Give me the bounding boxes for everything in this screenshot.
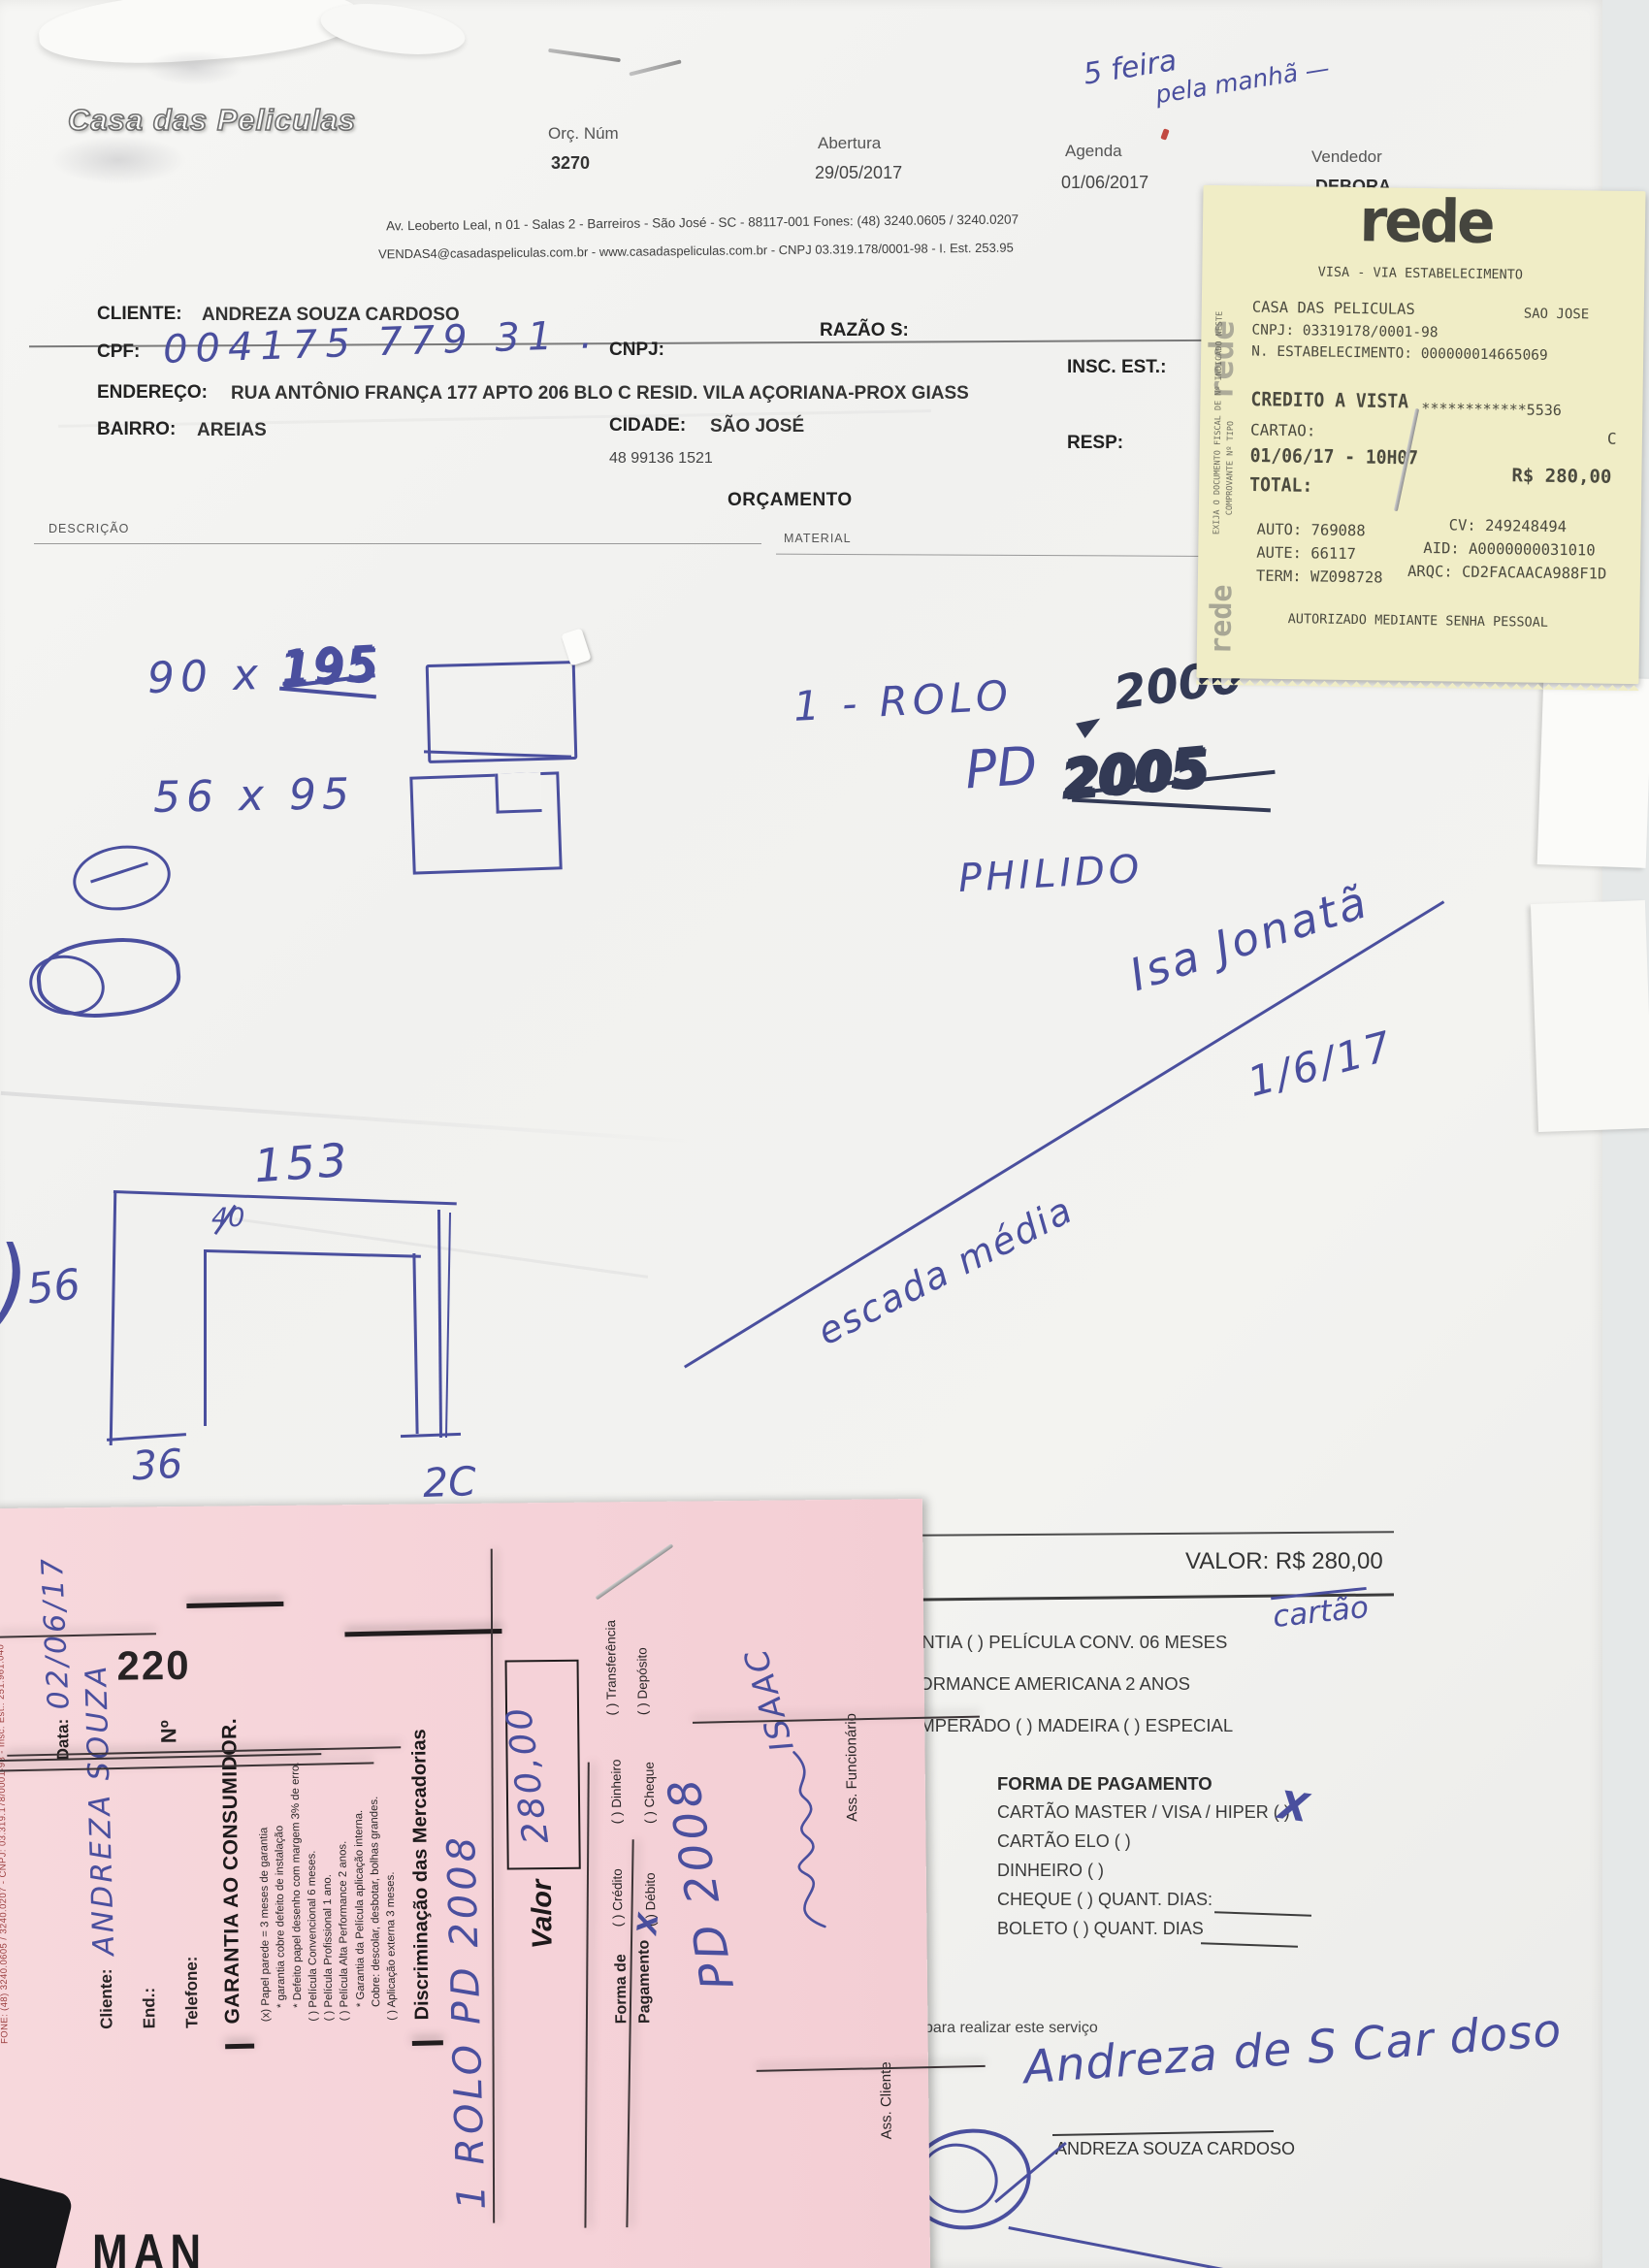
warranty-slip: FONE: (48) 3240.0605 / 3240.0207 - CNPJ:… bbox=[0, 1499, 930, 2268]
open-date-label: Abertura bbox=[818, 134, 881, 153]
slip-client-label: Cliente: bbox=[97, 1968, 117, 2029]
warranty-option-row-1: ANTIA ( ) PELÍCULA CONV. 06 MESES bbox=[910, 1632, 1227, 1653]
schedule-value: 01/06/2017 bbox=[1061, 173, 1148, 193]
receipt-footer: AUTORIZADO MEDIANTE SENHA PESSOAL bbox=[1250, 611, 1585, 632]
schedule-label: Agenda bbox=[1065, 142, 1122, 161]
city-label: CIDADE: bbox=[609, 415, 686, 437]
payment-option-cash: DINHEIRO ( ) bbox=[997, 1861, 1104, 1881]
receipt-edge-text-1: EXIJA O DOCUMENTO FISCAL DE Nº INDICADO … bbox=[1212, 311, 1225, 535]
sketch-top-width-label: 153 bbox=[252, 1134, 351, 1194]
receipt-edge-text-2: COMPROVANTE Nº TIPO bbox=[1225, 421, 1236, 515]
address-value: RUA ANTÔNIO FRANÇA 177 APTO 206 BLO C RE… bbox=[231, 383, 969, 405]
slip-checkbox-deposito: ( ) Depósito bbox=[634, 1647, 650, 1715]
handwritten-pd: PD bbox=[963, 734, 1039, 800]
warranty-option-row-2: FORMANCE AMERICANA 2 ANOS bbox=[908, 1673, 1190, 1695]
sketch-right-width-label: 2C bbox=[422, 1458, 476, 1507]
district-value: AREIAS bbox=[197, 420, 267, 441]
rede-logo: rede bbox=[1309, 185, 1543, 258]
rede-logo-vertical-bottom: rede bbox=[1204, 566, 1240, 672]
sketch-left-height-label: 56 bbox=[25, 1260, 83, 1313]
slip-number-value: 220 bbox=[116, 1642, 191, 1690]
handwritten-dimension-1: 90 x bbox=[146, 650, 265, 703]
slip-number-label: Nº bbox=[156, 1720, 181, 1743]
scanned-document: Casa das Peliculas Orç. Núm 3270 Abertur… bbox=[0, 0, 1649, 2268]
receipt-merchant: CASA DAS PELICULAS bbox=[1252, 299, 1415, 318]
cnpj-label: CNPJ: bbox=[609, 340, 664, 361]
warranty-option-row-3: EMPERADO ( ) MADEIRA ( ) ESPECIAL bbox=[908, 1715, 1233, 1736]
paper-smudge bbox=[145, 50, 242, 85]
employee-signature-name: ISAAC bbox=[736, 1644, 801, 1756]
slip-payment-label-2: Pagamento bbox=[636, 1940, 655, 2024]
slip-checkbox-credito: ( ) Crédito bbox=[610, 1868, 626, 1927]
receipt-arqc: ARQC: CD2FACAACA988F1D bbox=[1407, 563, 1607, 583]
customer-printed-name: ANDREZA SOUZA CARDOSO bbox=[1055, 2139, 1295, 2159]
slip-edge-fine-print: FONE: (48) 3240.0605 / 3240.0207 - CNPJ:… bbox=[0, 1644, 11, 2044]
slip-address-label: End.: bbox=[140, 1988, 159, 2029]
frame-inner-vertical bbox=[204, 1249, 207, 1426]
slip-checkbox-cheque: ( ) Cheque bbox=[642, 1762, 658, 1824]
company-logo: Casa das Peliculas bbox=[68, 103, 356, 138]
slip-title-bar-left bbox=[225, 2044, 254, 2050]
paper-smudge bbox=[50, 136, 186, 184]
slip-item-handwritten-2: PD 2008 bbox=[657, 1772, 744, 1994]
slip-value-label: Valor bbox=[527, 1879, 560, 1949]
receipt-aute: AUTE: 66117 bbox=[1256, 544, 1356, 563]
payment-option-elo: CARTÃO ELO ( ) bbox=[997, 1831, 1131, 1852]
material-column-label: MATERIAL bbox=[784, 532, 852, 545]
cpf-label: CPF: bbox=[97, 341, 140, 363]
total-value-line: VALOR: R$ 280,00 bbox=[1185, 1548, 1383, 1575]
order-number-value: 3270 bbox=[551, 153, 590, 174]
receipt-transaction-type: CREDITO A VISTA bbox=[1250, 388, 1408, 412]
slip-client-handwritten: ANDREZA SOUZA bbox=[80, 1663, 121, 1956]
slip-client-signature-label: Ass. Cliente bbox=[878, 2061, 895, 2139]
receipt-auto: AUTO: 769088 bbox=[1256, 521, 1365, 540]
receipt-card-label: CARTAO: bbox=[1250, 421, 1316, 440]
corner-partial-text: MAN bbox=[92, 2224, 207, 2268]
slip-checkbox-transferencia: ( ) Transferência bbox=[603, 1620, 619, 1715]
slip-ruled-line-2 bbox=[584, 1763, 589, 2228]
slip-checkbox-dinheiro: ( ) Dinheiro bbox=[609, 1759, 625, 1824]
slip-phone-label: Telefone: bbox=[182, 1956, 203, 2028]
slip-merchandise-title: Discriminação das Mercadorias bbox=[408, 1729, 434, 2020]
razao-social-label: RAZÃO S: bbox=[820, 320, 909, 341]
slip-title: GARANTIA AO CONSUMIDOR. bbox=[218, 1718, 244, 2025]
receipt-amount: R$ 280,00 bbox=[1511, 465, 1611, 487]
receipt-establishment: N. ESTABELECIMENTO: 000000014665069 bbox=[1251, 344, 1548, 364]
slip-item-handwritten: 1 ROLO PD 2008 bbox=[439, 1832, 495, 2210]
salesperson-label: Vendedor bbox=[1311, 147, 1382, 167]
city-value: SÃO JOSÉ bbox=[710, 416, 804, 437]
receipt-cnpj: CNPJ: 03319178/0001-98 bbox=[1251, 323, 1438, 341]
slip-date-handwritten: 02/06/17 bbox=[36, 1555, 77, 1710]
sketch-rectangle-1 bbox=[426, 661, 578, 763]
payment-method-title: FORMA DE PAGAMENTO bbox=[997, 1773, 1212, 1795]
payment-option-boleto: BOLETO ( ) QUANT. DIAS bbox=[997, 1919, 1204, 1939]
client-phone: 48 99136 1521 bbox=[609, 450, 713, 468]
receipt-total-label: TOTAL: bbox=[1249, 474, 1312, 498]
receipt-via-line: VISA - VIA ESTABELECIMENTO bbox=[1260, 264, 1580, 284]
receipt-term: TERM: WZ098728 bbox=[1256, 567, 1383, 587]
district-label: BAIRRO: bbox=[97, 419, 176, 440]
receipt-datetime: 01/06/17 - 10H07 bbox=[1250, 445, 1419, 470]
responsible-label: RESP: bbox=[1067, 433, 1123, 454]
insc-est-label: INSC. EST.: bbox=[1067, 357, 1166, 378]
service-note-text: para realizar este serviço bbox=[917, 2020, 1098, 2037]
receipt-city: SAO JOSE bbox=[1524, 306, 1590, 322]
slip-merc-bar-left bbox=[412, 2041, 443, 2046]
sketch-rectangle-2 bbox=[409, 771, 562, 874]
slip-date-underline bbox=[0, 1634, 156, 1638]
receipt-card-mask: ************5536 bbox=[1421, 400, 1562, 419]
order-number-label: Orç. Núm bbox=[548, 124, 619, 144]
address-label: ENDEREÇO: bbox=[97, 382, 208, 404]
employee-signature-flourish bbox=[764, 1747, 844, 1932]
sketch-rectangle-2-notch bbox=[495, 772, 541, 814]
slip-payment-label-1: Forma de bbox=[613, 1954, 631, 2024]
client-label: CLIENTE: bbox=[97, 304, 182, 325]
sketch-bottom-width-label: 36 bbox=[131, 1441, 184, 1490]
slip-debito-x-mark: X bbox=[630, 1912, 664, 1936]
card-receipt: rede EXIJA O DOCUMENTO FISCAL DE Nº INDI… bbox=[1196, 185, 1645, 684]
open-date-value: 29/05/2017 bbox=[815, 163, 902, 183]
payment-option-card: CARTÃO MASTER / VISA / HIPER ( ) bbox=[997, 1802, 1290, 1823]
receipt-aid: AID: A0000000031010 bbox=[1423, 539, 1596, 559]
budget-title: ORÇAMENTO bbox=[727, 490, 853, 511]
description-column-label: DESCRIÇÃO bbox=[48, 522, 129, 535]
handwritten-x-mark: X bbox=[1276, 1783, 1311, 1831]
slip-ruled-line-3 bbox=[626, 1839, 633, 2227]
receipt-card-flag: C bbox=[1607, 430, 1617, 448]
sketch-left-bracket: ) bbox=[0, 1227, 29, 1339]
description-underline bbox=[34, 543, 761, 544]
stacked-paper-edge-1 bbox=[1537, 675, 1649, 868]
stacked-paper-edge-2 bbox=[1531, 900, 1649, 1132]
payment-option-check: CHEQUE ( ) QUANT. DIAS: bbox=[997, 1890, 1212, 1910]
handwritten-dimension-2: 56 x 95 bbox=[153, 769, 356, 823]
receipt-cv: CV: 249248494 bbox=[1449, 516, 1568, 535]
slip-employee-signature-label: Ass. Funcionário bbox=[843, 1713, 860, 1822]
